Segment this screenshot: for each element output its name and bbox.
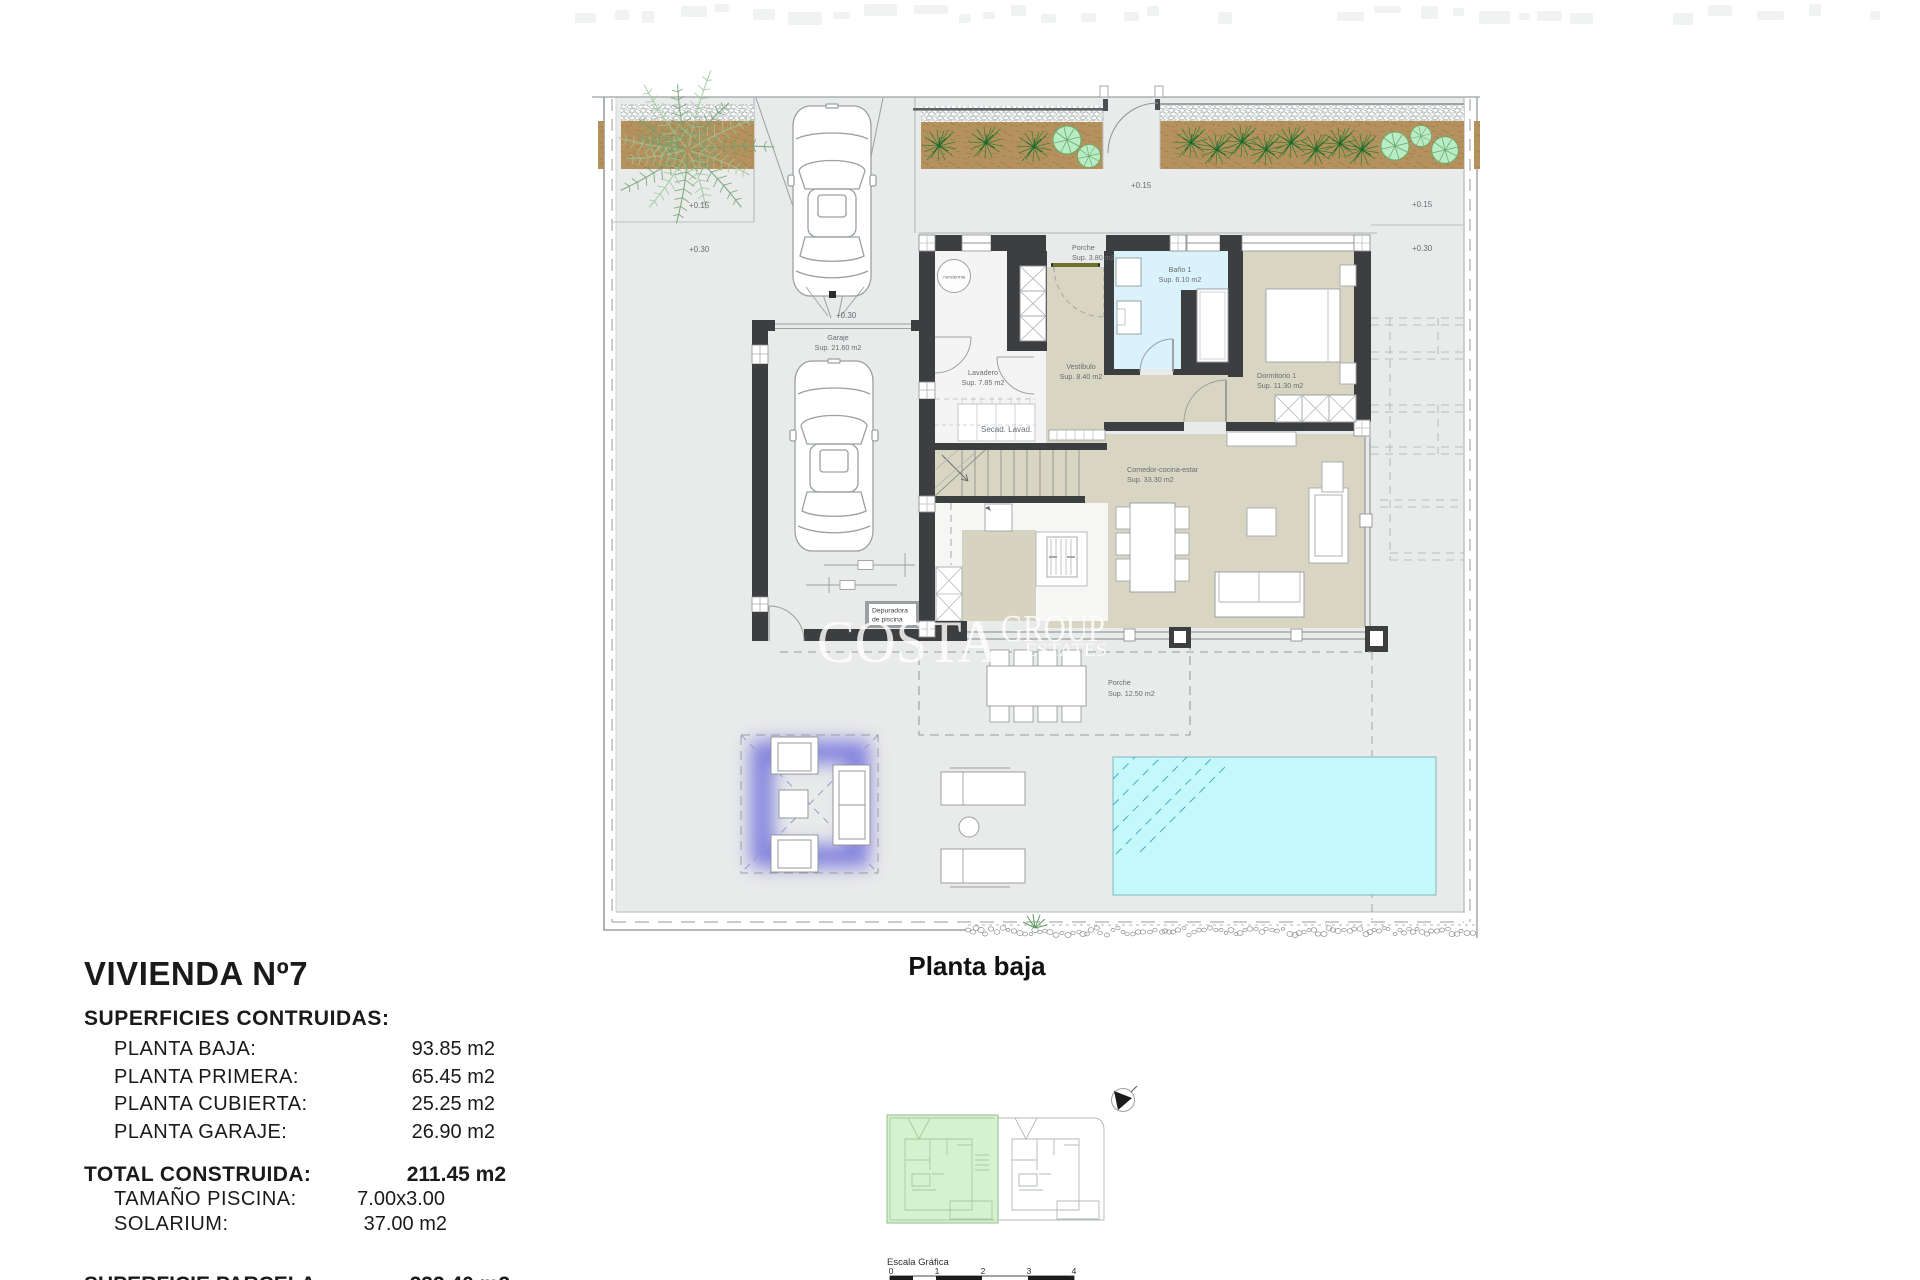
svg-text:+0.30: +0.30 — [689, 245, 710, 254]
svg-text:Sup. 7.85 m2: Sup. 7.85 m2 — [962, 378, 1005, 387]
svg-text:2: 2 — [981, 1266, 986, 1276]
svg-text:Sup. 21.60 m2: Sup. 21.60 m2 — [815, 343, 862, 352]
svg-text:3: 3 — [1027, 1266, 1032, 1276]
svg-text:+0.15: +0.15 — [1412, 200, 1433, 209]
svg-text:ESTATES: ESTATES — [1025, 640, 1107, 661]
svg-text:Sup. 6.10 m2: Sup. 6.10 m2 — [1159, 275, 1202, 284]
svg-text:+0.15: +0.15 — [1131, 181, 1152, 190]
svg-text:Aerotermia: Aerotermia — [943, 275, 966, 280]
svg-text:0: 0 — [889, 1266, 894, 1276]
svg-text:COSTA: COSTA — [817, 609, 998, 675]
svg-text:Secad. Lavad.: Secad. Lavad. — [981, 425, 1032, 434]
svg-text:Sup. 8.40 m2: Sup. 8.40 m2 — [1060, 372, 1103, 381]
svg-text:Comedor-cocina-estar: Comedor-cocina-estar — [1127, 465, 1199, 474]
svg-text:1: 1 — [935, 1266, 940, 1276]
svg-text:Sup. 11.30 m2: Sup. 11.30 m2 — [1257, 381, 1303, 390]
svg-text:Sup. 12.50 m2: Sup. 12.50 m2 — [1108, 689, 1155, 698]
svg-text:4: 4 — [1072, 1266, 1077, 1276]
svg-text:Vestíbulo: Vestíbulo — [1066, 362, 1096, 371]
svg-text:Dormitorio 1: Dormitorio 1 — [1257, 371, 1296, 380]
svg-text:+0.30: +0.30 — [836, 311, 857, 320]
svg-text:Porche: Porche — [1072, 243, 1095, 252]
svg-text:Garaje: Garaje — [827, 333, 849, 342]
svg-text:+0.30: +0.30 — [1412, 244, 1433, 253]
svg-text:Escala Gráfica: Escala Gráfica — [887, 1257, 949, 1268]
svg-text:+0.15: +0.15 — [689, 201, 710, 210]
svg-text:Lavadero: Lavadero — [968, 368, 998, 377]
svg-text:Sup. 33.30 m2: Sup. 33.30 m2 — [1127, 475, 1174, 484]
svg-text:Sup. 3.80 m2: Sup. 3.80 m2 — [1072, 253, 1115, 262]
svg-text:Baño 1: Baño 1 — [1169, 265, 1192, 274]
svg-text:Porche: Porche — [1108, 678, 1131, 687]
svg-text:Planta baja: Planta baja — [908, 951, 1046, 981]
